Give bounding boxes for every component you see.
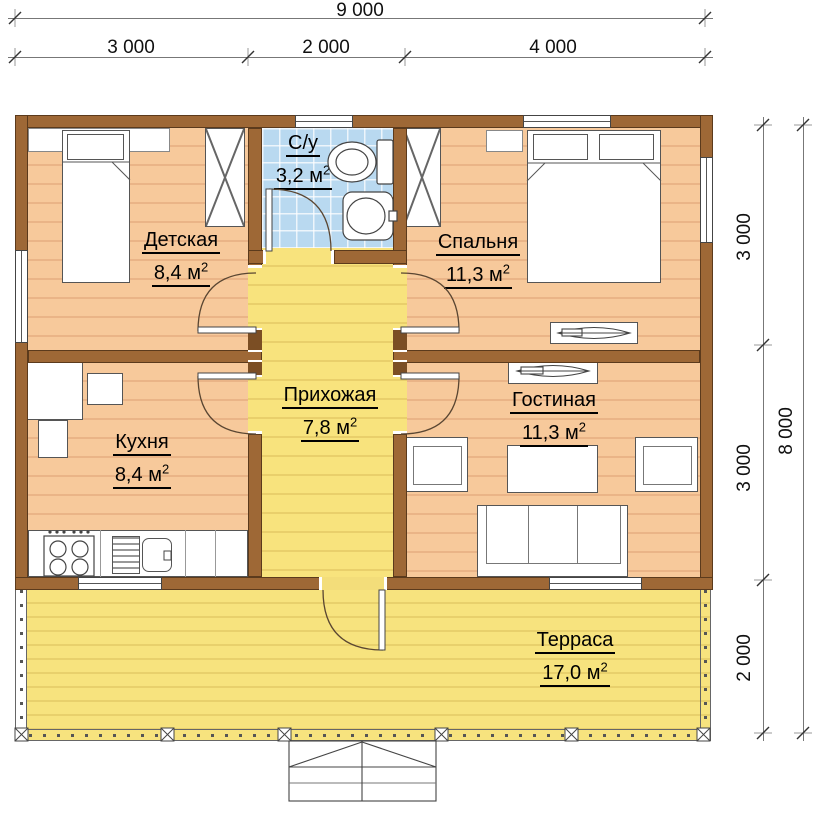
door-jamb [331,250,334,264]
stairs [289,741,436,801]
room-name: Кухня [113,431,171,456]
wall-b-bottom [393,434,407,577]
terrace-railing-bottom [15,729,711,741]
door-jamb [319,577,322,590]
dim-line-right-total [803,117,804,741]
room-name: Детская [142,229,220,254]
dim-right-total: 8 000 [776,356,798,506]
bedroom-pillow-left [533,134,588,160]
label-terrace: Терраса 17,0 м2 [490,629,660,685]
window-bedroom-top [523,115,611,128]
room-name: Терраса [535,629,616,654]
dim-top-seg-2: 2 000 [251,37,401,59]
counter-divider [215,530,216,577]
living-armchair-left [405,437,468,492]
room-name: Спальня [436,231,520,256]
window-bathroom-top [295,115,353,128]
wall-post [248,328,262,352]
room-name: Прихожая [282,384,379,409]
dim-right-seg-3: 2 000 [734,583,756,733]
kids-pillow [67,134,124,160]
kitchen-chair-1 [87,373,123,405]
label-living: Гостиная 11,3 м2 [469,389,639,445]
bedroom-shelf [486,130,523,152]
label-bedroom: Спальня 11,3 м2 [393,231,563,287]
living-sofa [477,505,628,577]
window-kitchen-south [78,577,162,590]
wall-post [393,328,407,352]
dim-top-total: 9 000 [285,0,435,22]
terrace-railing-left [15,590,27,740]
wall-mid-right [393,350,700,363]
wall-a-bottom [248,434,262,577]
bedroom-tv-stand [550,322,638,344]
bedroom-wardrobe [403,128,441,227]
door-jamb [384,577,387,590]
counter-divider [100,530,101,577]
label-kids: Детская 8,4 м2 [96,229,266,285]
wall-post [393,360,407,377]
living-coffee-table [507,445,598,493]
window-kids-left [15,250,28,343]
kitchen-sink-basin [142,538,172,572]
window-living-south [549,577,642,590]
dim-line-right-segments [763,117,764,741]
terrace-railing-right [700,590,711,741]
wall-mid-left [28,350,262,363]
dim-right-seg-2: 3 000 [734,393,756,543]
dim-top-seg-3: 4 000 [478,37,628,59]
window-bedroom-right [700,157,713,243]
room-name: С/у [286,132,320,157]
room-name: Гостиная [510,389,598,414]
label-bathroom: С/у 3,2 м2 [218,132,388,188]
label-kitchen: Кухня 8,4 м2 [57,431,227,487]
kitchen-sink-drainer [112,536,140,574]
counter-divider [185,530,186,577]
wall-left [15,115,28,590]
bedroom-pillow-right [599,134,654,160]
living-armchair-right [635,437,698,492]
terrace-door-opening [319,577,387,590]
dim-right-seg-1: 3 000 [734,162,756,312]
kitchen-table [25,360,83,420]
wall-post [248,360,262,377]
dim-top-seg-1: 3 000 [56,37,206,59]
floor-plan: Детская 8,4 м2 С/у 3,2 м2 Спальня 11,3 м… [0,0,829,816]
label-hallway: Прихожая 7,8 м2 [245,384,415,440]
